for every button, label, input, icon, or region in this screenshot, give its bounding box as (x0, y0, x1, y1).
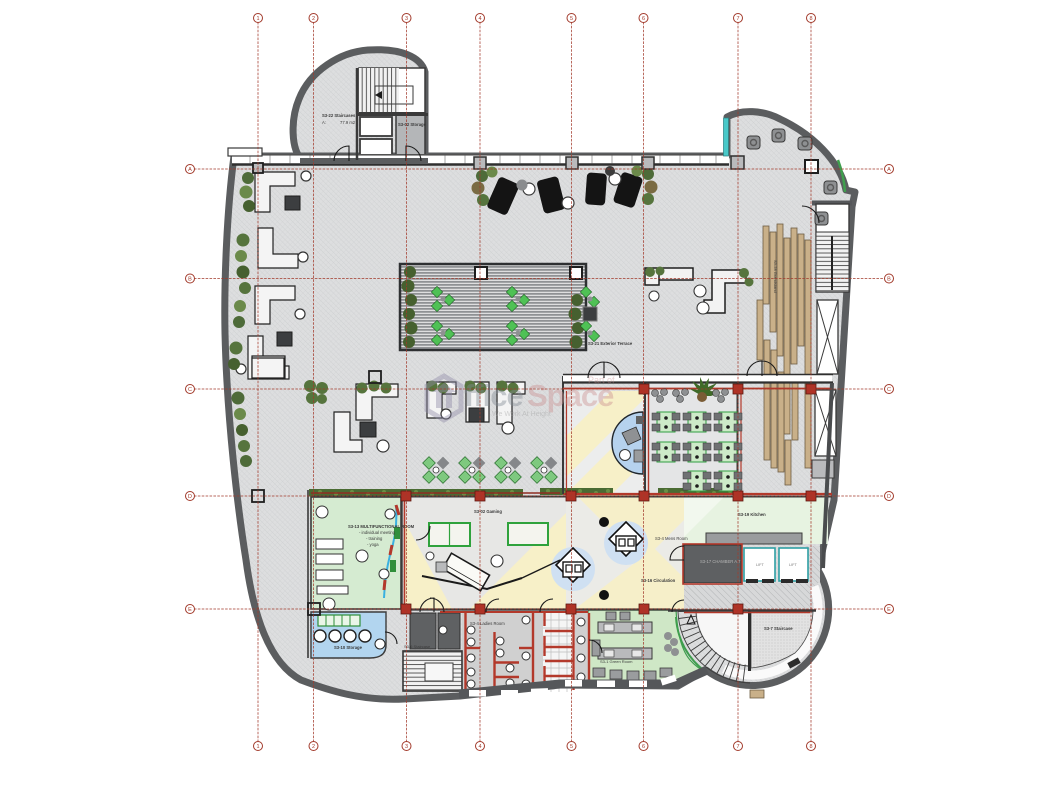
svg-text:6: 6 (642, 16, 645, 22)
svg-text:77.9 m2: 77.9 m2 (340, 120, 356, 125)
svg-text:2: 2 (312, 16, 315, 22)
svg-text:S3-4 Ladies Room: S3-4 Ladies Room (470, 621, 505, 626)
svg-text:S3-22 Staircases: S3-22 Staircases (322, 113, 356, 118)
svg-text:S3-1 Green Room: S3-1 Green Room (600, 659, 633, 664)
svg-text:S3-10 Storage: S3-10 Storage (334, 645, 363, 650)
svg-text:B: B (887, 277, 891, 283)
svg-text:S3-16 Circulation: S3-16 Circulation (641, 578, 676, 583)
svg-text:S3-28 Grandstand: S3-28 Grandstand (773, 260, 778, 293)
svg-text:7: 7 (736, 16, 739, 22)
svg-text:A:: A: (322, 120, 326, 125)
svg-text:E: E (188, 607, 192, 613)
svg-text:5: 5 (570, 16, 573, 22)
svg-text:1: 1 (256, 744, 259, 750)
svg-text:- yoga: - yoga (367, 542, 379, 547)
svg-text:A: A (887, 167, 891, 173)
svg-text:A: A (188, 167, 192, 173)
svg-text:S3-19 Kitchen: S3-19 Kitchen (738, 512, 766, 517)
svg-text:B: B (188, 277, 192, 283)
svg-text:LIFT: LIFT (789, 563, 797, 567)
svg-text:E: E (887, 607, 891, 613)
svg-text:S3-17 CHAMBER A.7: S3-17 CHAMBER A.7 (700, 559, 741, 564)
svg-text:8: 8 (809, 16, 812, 22)
svg-text:LIFT: LIFT (756, 563, 764, 567)
svg-text:4: 4 (478, 744, 481, 750)
svg-text:C: C (887, 387, 891, 393)
svg-text:Part of: Part of (588, 375, 615, 385)
svg-text:6: 6 (642, 744, 645, 750)
svg-text:S3-13 MULTIFUNCTIONAL ROOM: S3-13 MULTIFUNCTIONAL ROOM (348, 524, 415, 529)
svg-text:D: D (887, 494, 891, 500)
svg-text:7: 7 (736, 744, 739, 750)
svg-text:S3-02 Storage: S3-02 Storage (398, 122, 427, 127)
svg-text:8: 8 (809, 744, 812, 750)
svg-text:S3-6 Staircase: S3-6 Staircase (404, 644, 431, 649)
svg-text:S3-21 Exterior Terrace: S3-21 Exterior Terrace (588, 341, 633, 346)
svg-text:1: 1 (256, 16, 259, 22)
svg-text:4: 4 (478, 16, 481, 22)
svg-text:3: 3 (405, 744, 408, 750)
svg-text:S3-02 Gaming: S3-02 Gaming (474, 509, 502, 514)
svg-text:C: C (188, 387, 192, 393)
svg-text:- training: - training (366, 536, 383, 541)
svg-text:ffice: ffice (464, 378, 524, 413)
svg-text:2: 2 (312, 744, 315, 750)
svg-text:3: 3 (405, 16, 408, 22)
svg-text:S3-7 Staircase: S3-7 Staircase (764, 626, 793, 631)
svg-text:We Work At Height: We Work At Height (492, 411, 551, 418)
svg-text:S3-4 Mens Room: S3-4 Mens Room (655, 536, 688, 541)
svg-text:D: D (188, 494, 192, 500)
svg-text:- individual meeting: - individual meeting (359, 530, 396, 535)
svg-text:5: 5 (570, 744, 573, 750)
